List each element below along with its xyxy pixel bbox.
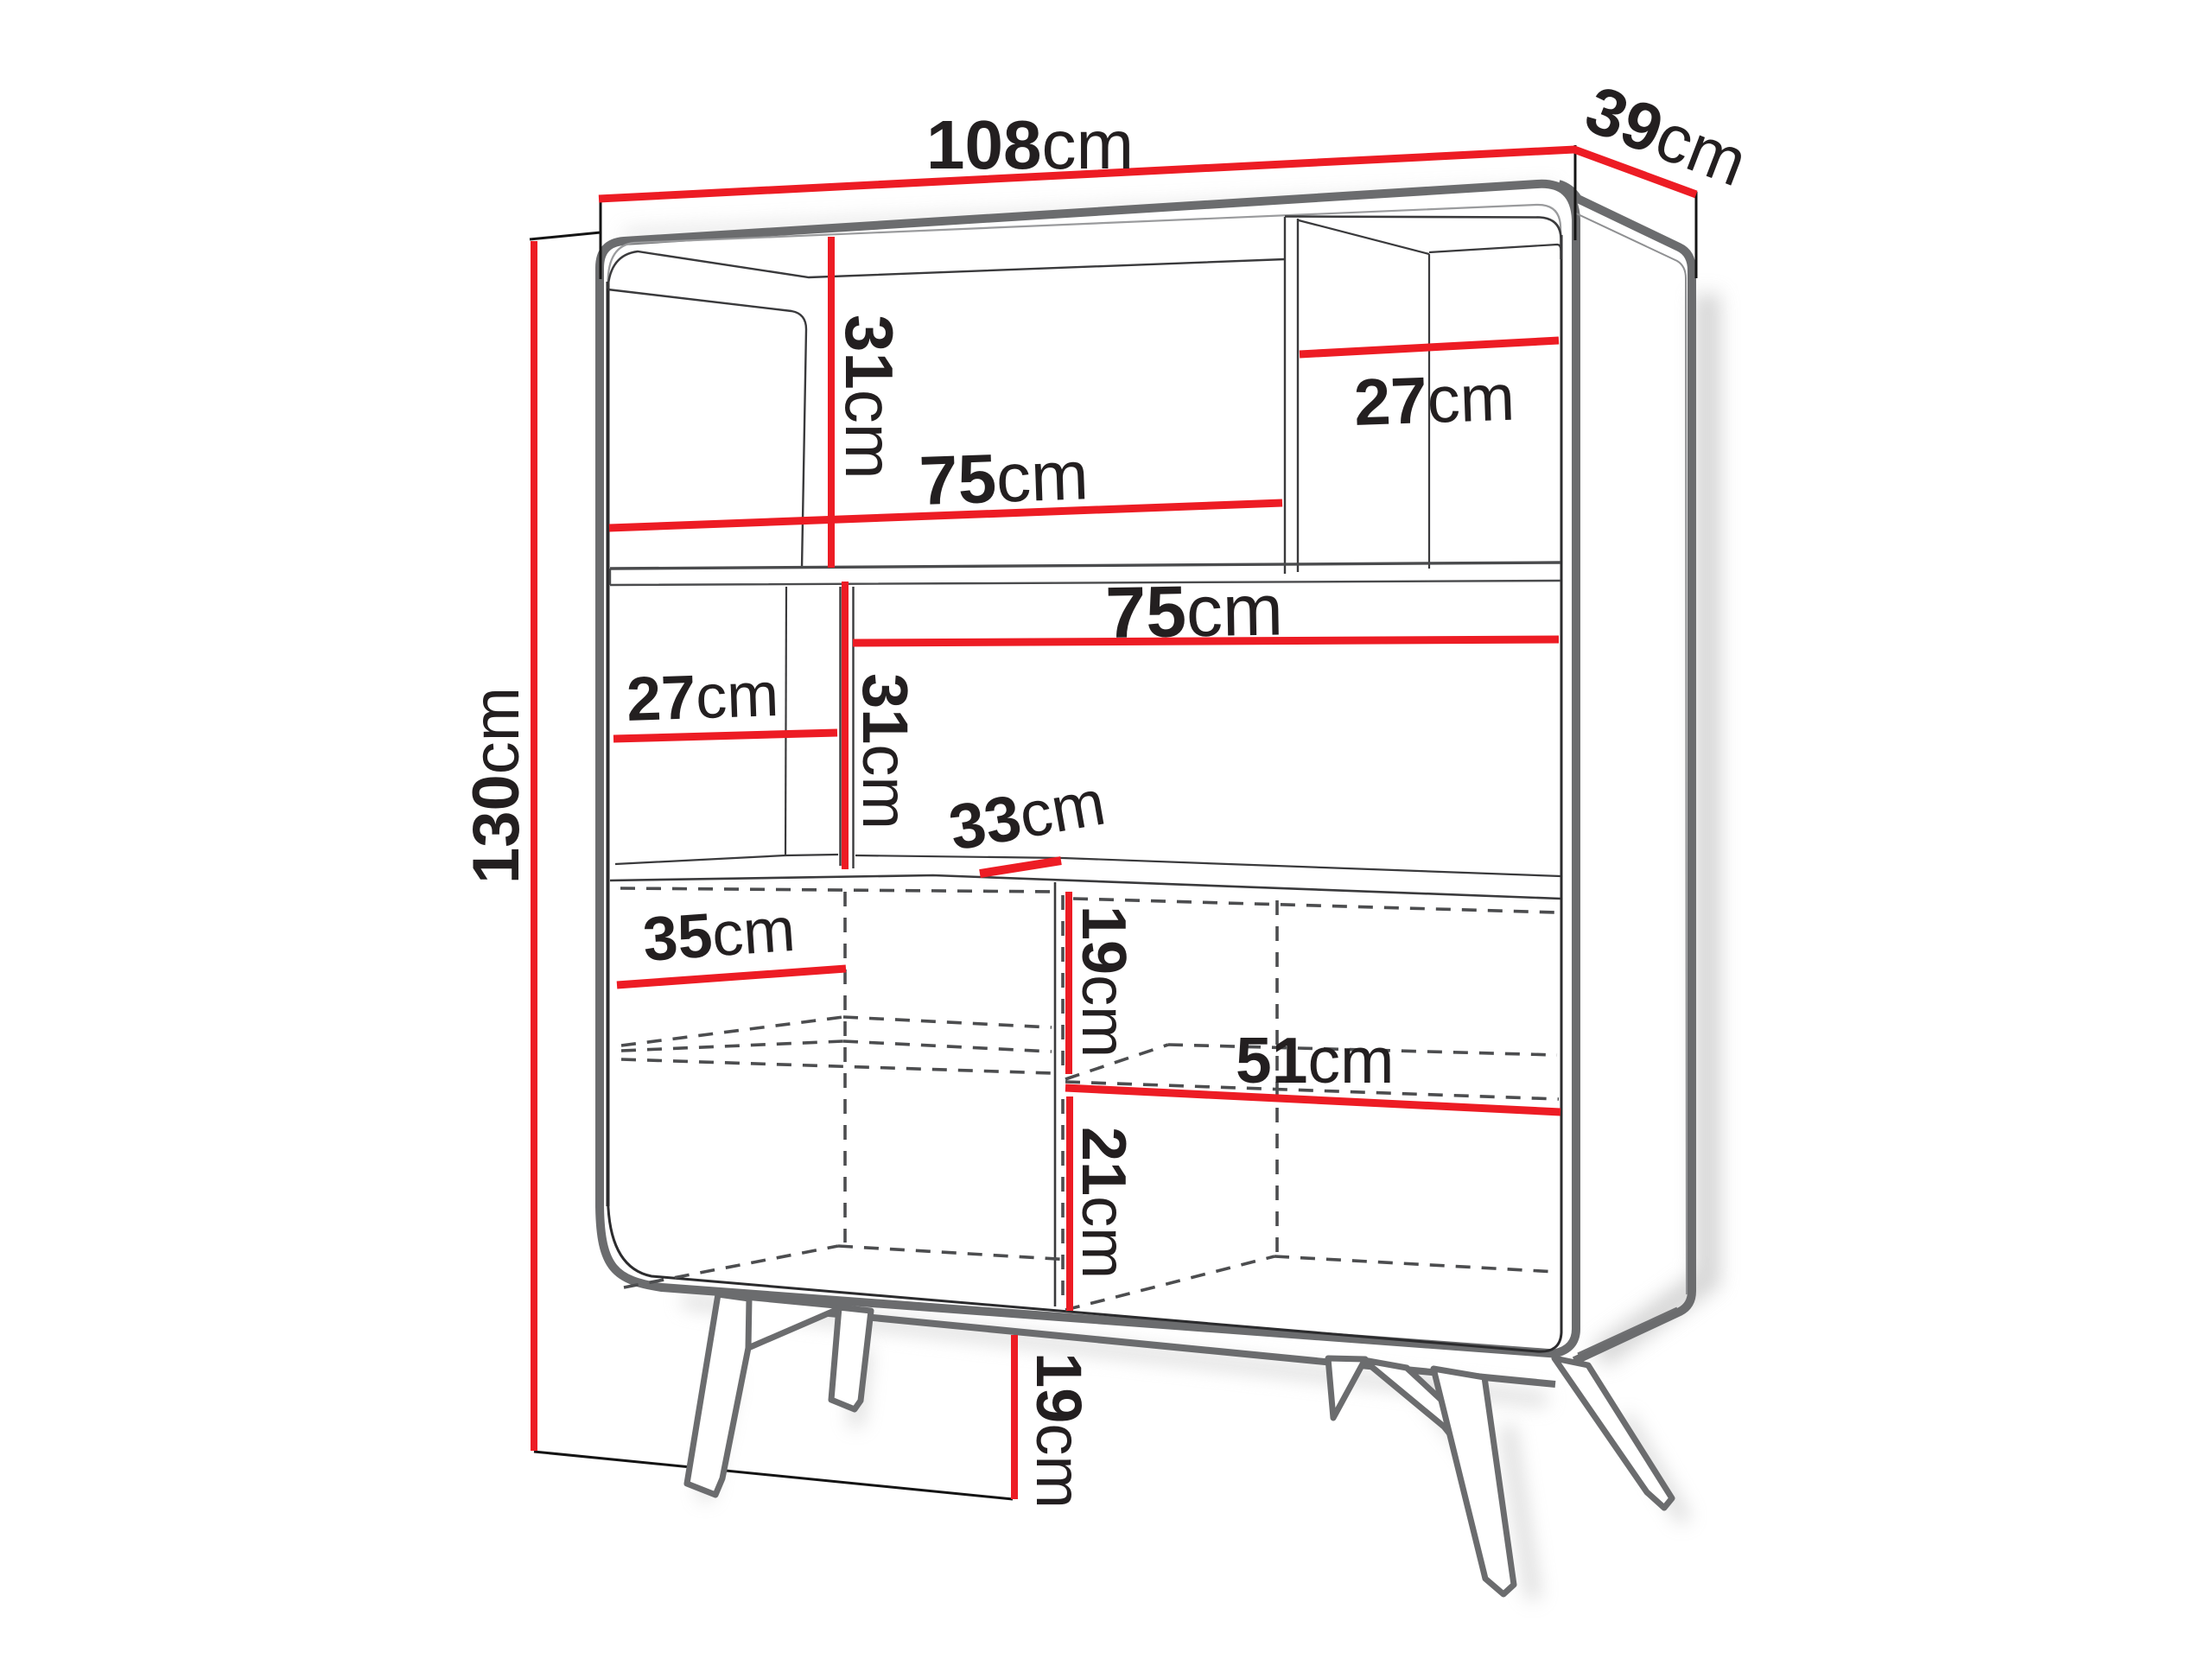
svg-text:51cm: 51cm <box>1236 1024 1394 1096</box>
svg-text:19cm: 19cm <box>1023 1352 1095 1509</box>
svg-text:75cm: 75cm <box>1105 569 1284 653</box>
svg-text:21cm: 21cm <box>1069 1127 1138 1279</box>
svg-text:108cm: 108cm <box>926 106 1134 183</box>
svg-text:27cm: 27cm <box>626 660 780 734</box>
svg-text:130cm: 130cm <box>460 687 533 884</box>
svg-text:35cm: 35cm <box>641 895 798 975</box>
svg-text:31cm: 31cm <box>831 315 907 480</box>
svg-text:75cm: 75cm <box>918 436 1090 519</box>
svg-text:27cm: 27cm <box>1353 361 1516 440</box>
svg-text:19cm: 19cm <box>1069 906 1138 1058</box>
svg-text:31cm: 31cm <box>849 673 921 829</box>
